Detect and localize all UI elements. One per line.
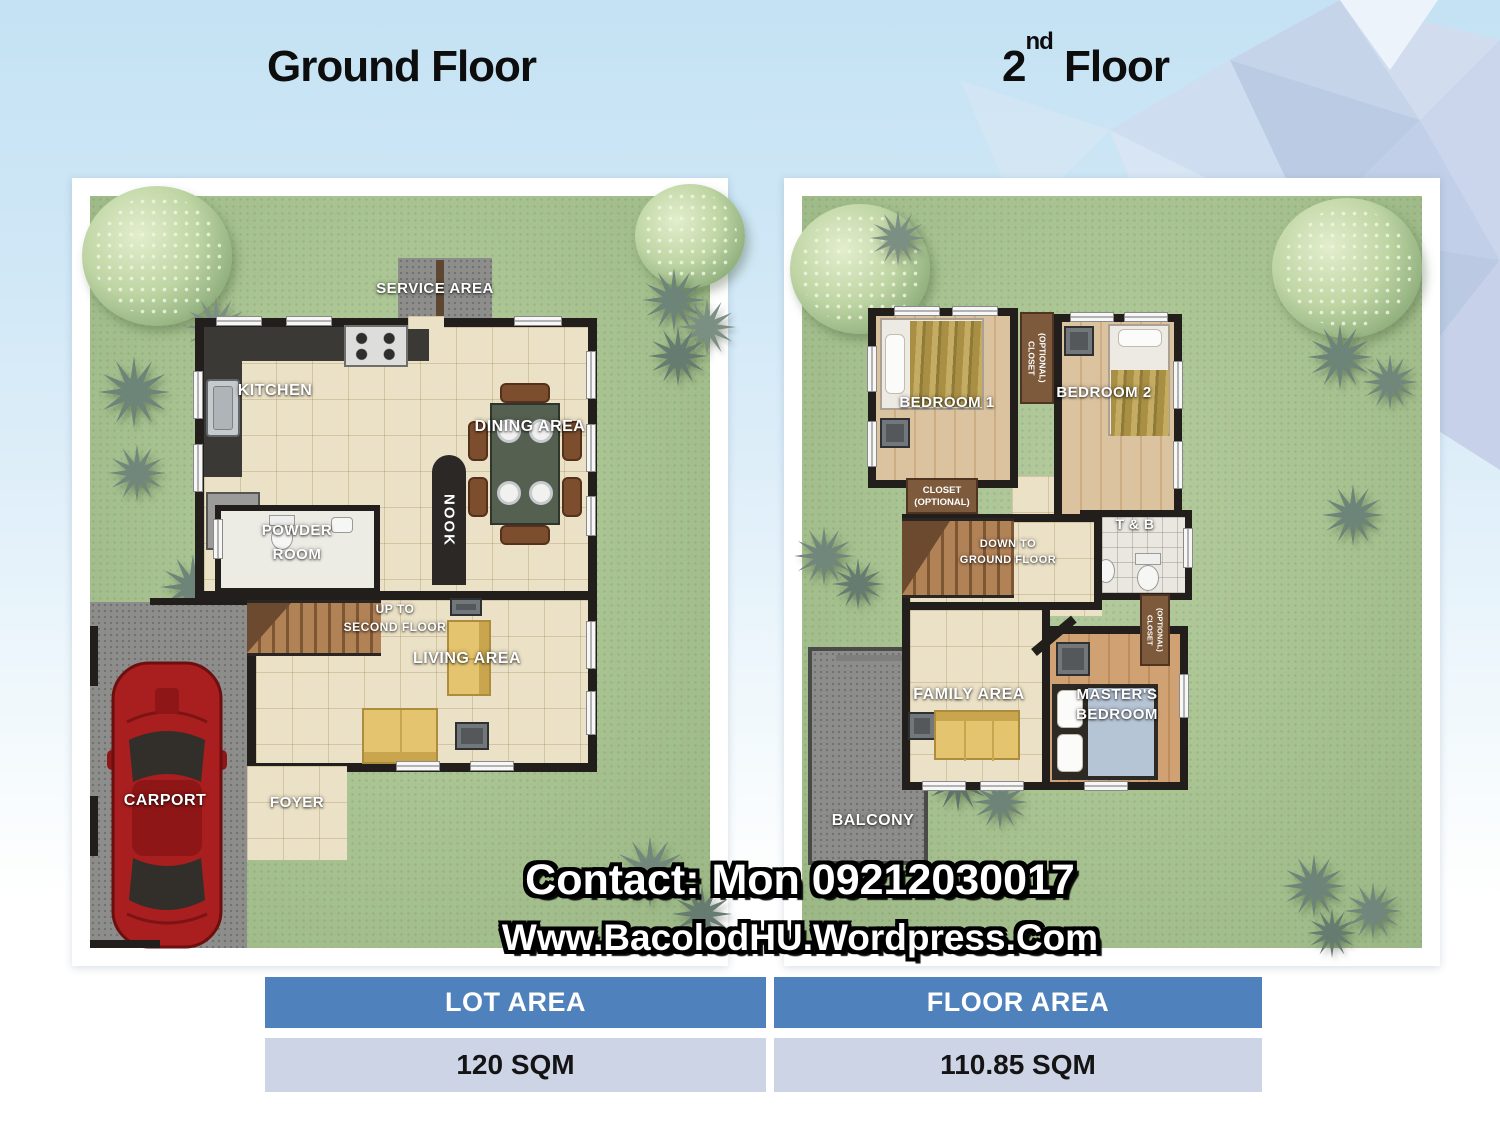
sofa-icon	[362, 708, 438, 764]
closet-label: (OPTIONAL)	[1156, 608, 1165, 652]
master-bedroom-label: BEDROOM	[1076, 706, 1158, 723]
second-floor-title: 2nd Floor	[1002, 42, 1169, 92]
bush-icon	[1322, 484, 1384, 546]
chair-icon	[500, 383, 550, 403]
window-icon	[1183, 528, 1193, 568]
window-icon	[1084, 781, 1128, 791]
toilet-bath-label: T & B	[1115, 516, 1154, 532]
window-icon	[586, 691, 596, 735]
table-header-row: LOT AREA FLOOR AREA	[265, 977, 1262, 1028]
bush-icon	[108, 444, 166, 502]
window-icon	[586, 621, 596, 669]
bedroom2-block	[1054, 314, 1182, 524]
window-icon	[1173, 441, 1183, 489]
foyer-area	[247, 766, 347, 860]
nightstand-icon	[880, 418, 910, 448]
window-icon	[867, 346, 877, 392]
window-icon	[952, 306, 998, 316]
stairs-up-label: UP TO	[376, 602, 415, 616]
bush-icon	[1362, 354, 1418, 410]
plate-icon	[497, 481, 521, 505]
dining-set-icon	[466, 385, 584, 545]
chair-icon	[500, 525, 550, 545]
closet-label: (OPTIONAL)	[914, 497, 969, 508]
wall-stub	[90, 796, 98, 856]
window-icon	[586, 424, 596, 472]
door-opening	[408, 316, 444, 329]
floor-area-header: FLOOR AREA	[774, 977, 1262, 1028]
contact-overlay: Contact: Mon 09212030017 Www.BacolodHU.W…	[405, 856, 1195, 959]
contact-phone: Contact: Mon 09212030017	[405, 856, 1195, 905]
closet-label: (OPTIONAL)	[1038, 333, 1048, 383]
side-table-icon	[908, 712, 936, 740]
window-icon	[1173, 361, 1183, 409]
balcony-label: BALCONY	[832, 812, 915, 830]
second-floor-ordinal: nd	[1025, 28, 1052, 55]
wall-stub	[150, 598, 247, 605]
window-icon	[1070, 312, 1114, 322]
window-icon	[193, 371, 203, 419]
bush-icon	[870, 210, 926, 266]
table-value-row: 120 SQM 110.85 SQM	[265, 1028, 1262, 1092]
chair-icon	[562, 477, 582, 517]
chair-icon	[468, 477, 488, 517]
toilet-icon	[1137, 565, 1159, 591]
bush-icon	[98, 356, 170, 428]
kitchen-sink-icon	[206, 379, 240, 437]
sink-icon	[331, 517, 353, 533]
closet-optional: CLOSET (OPTIONAL)	[1020, 312, 1054, 404]
closet-label: CLOSET	[1027, 341, 1037, 375]
bush-icon	[832, 558, 884, 610]
window-icon	[396, 761, 440, 771]
area-table: LOT AREA FLOOR AREA 120 SQM 110.85 SQM	[265, 977, 1262, 1092]
closet-label: CLOSET	[923, 485, 962, 496]
window-icon	[894, 306, 940, 316]
window-icon	[586, 351, 596, 399]
window-icon	[586, 496, 596, 536]
carport-area	[90, 602, 247, 948]
stove-icon	[344, 325, 408, 367]
window-icon	[286, 316, 332, 326]
second-floor-word: Floor	[1053, 42, 1169, 91]
floor-area-value: 110.85 SQM	[774, 1038, 1262, 1092]
wall-stub	[90, 626, 98, 686]
ground-floor-lawn: NOOK	[90, 196, 710, 948]
bedroom1-label: BEDROOM 1	[899, 394, 994, 411]
contact-website: Www.BacolodHU.Wordpress.Com	[405, 917, 1195, 959]
powder-room-label: ROOM	[273, 546, 322, 563]
carport-label: CARPORT	[124, 792, 207, 810]
bed-icon	[1108, 324, 1170, 436]
powder-room-label: POWDER	[262, 522, 333, 539]
dining-area-label: DINING AREA	[475, 418, 586, 436]
window-icon	[980, 781, 1024, 791]
window-icon	[1124, 312, 1168, 322]
window-icon	[514, 316, 562, 326]
nook-counter: NOOK	[432, 455, 466, 585]
wall-stub	[90, 940, 160, 948]
closet-label: CLOSET	[1146, 615, 1155, 645]
window-icon	[922, 781, 966, 791]
second-floor-number: 2	[1002, 42, 1025, 91]
window-icon	[213, 519, 223, 559]
ground-floor-plan: NOOK	[72, 178, 728, 966]
plate-icon	[529, 481, 553, 505]
toilet-icon	[1135, 553, 1161, 565]
nightstand-icon	[1064, 326, 1094, 356]
window-icon	[470, 761, 514, 771]
second-floor-plan: CLOSET (OPTIONAL) CLOSET (OPTIONAL)	[784, 178, 1440, 966]
bush-icon	[1307, 908, 1357, 958]
bedroom2-label: BEDROOM 2	[1056, 384, 1151, 401]
bush-icon	[648, 326, 708, 386]
kitchen-label: KITCHEN	[238, 382, 313, 400]
tree-icon	[1272, 198, 1422, 338]
family-area-label: FAMILY AREA	[913, 686, 1025, 704]
stairs-up-label: SECOND FLOOR	[344, 620, 447, 634]
sofa-icon	[934, 710, 1020, 760]
service-area-label: SERVICE AREA	[376, 280, 494, 297]
living-block	[247, 591, 597, 772]
stairs-down-label: DOWN TO	[980, 538, 1036, 550]
side-table-icon	[455, 722, 489, 750]
foyer-label: FOYER	[270, 794, 324, 811]
closet-optional: CLOSET (OPTIONAL)	[906, 478, 978, 514]
lot-area-header: LOT AREA	[265, 977, 766, 1028]
lot-area-value: 120 SQM	[265, 1038, 766, 1092]
closet-optional: CLOSET (OPTIONAL)	[1140, 594, 1170, 666]
living-area-label: LIVING AREA	[413, 650, 521, 668]
side-table-icon	[1056, 642, 1090, 676]
window-icon	[216, 316, 262, 326]
slide-canvas: Ground Floor 2nd Floor	[0, 0, 1500, 1125]
ground-floor-title: Ground Floor	[267, 42, 536, 92]
nook-label: NOOK	[441, 494, 458, 547]
window-icon	[867, 421, 877, 467]
second-floor-lawn: CLOSET (OPTIONAL) CLOSET (OPTIONAL)	[802, 196, 1422, 948]
window-icon	[1179, 674, 1189, 718]
stairs-down-label: GROUND FLOOR	[960, 554, 1056, 566]
master-bedroom-label: MASTER'S	[1077, 686, 1158, 703]
window-icon	[193, 444, 203, 492]
side-table-icon	[450, 598, 482, 616]
